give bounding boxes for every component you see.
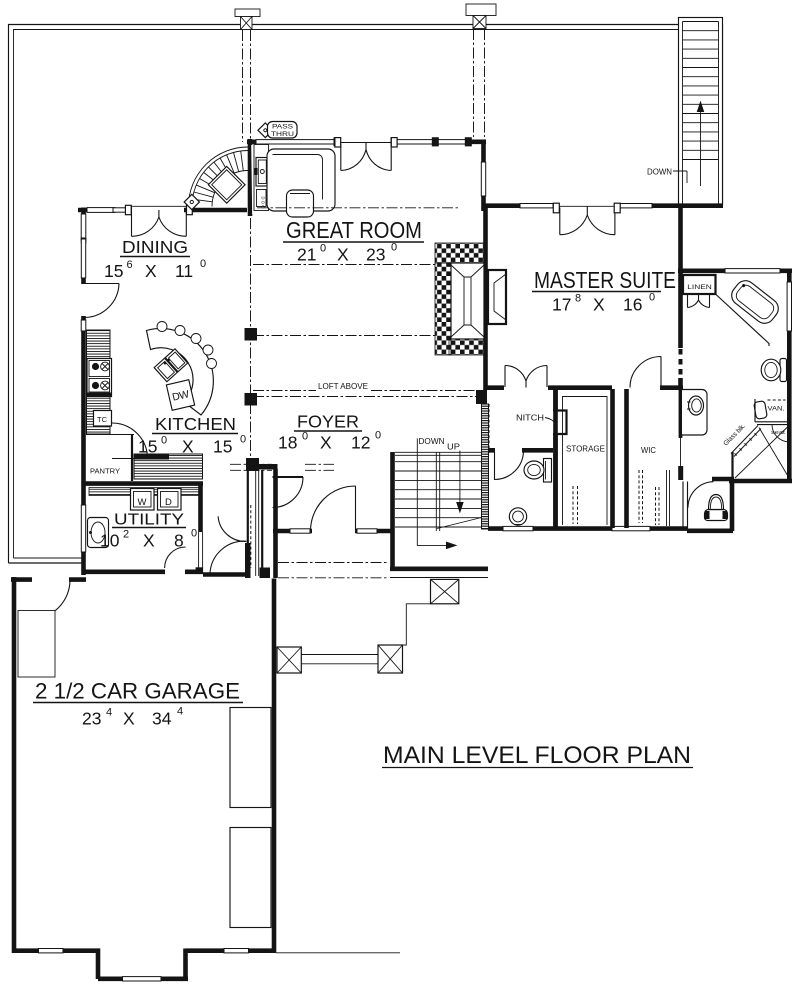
svg-text:4: 4 [177, 706, 183, 718]
svg-text:X: X [182, 437, 194, 457]
svg-text:W: W [138, 497, 147, 508]
svg-text:DOWN: DOWN [647, 168, 672, 177]
svg-text:GREAT ROOM: GREAT ROOM [286, 217, 422, 243]
svg-text:2: 2 [123, 529, 129, 541]
svg-text:STORAGE: STORAGE [566, 445, 605, 454]
svg-text:16: 16 [623, 295, 642, 315]
svg-text:seat: seat [771, 430, 785, 436]
svg-text:2 1/2 CAR GARAGE: 2 1/2 CAR GARAGE [35, 679, 240, 704]
svg-text:VAN.: VAN. [768, 406, 785, 413]
svg-text:X: X [337, 245, 349, 265]
svg-text:0: 0 [191, 528, 197, 540]
svg-text:KITCHEN: KITCHEN [155, 414, 236, 434]
svg-text:LINEN: LINEN [687, 284, 712, 291]
svg-text:17: 17 [552, 295, 571, 315]
svg-text:FOYER: FOYER [297, 412, 359, 432]
svg-text:TC: TC [97, 415, 108, 424]
svg-text:0: 0 [391, 242, 397, 254]
svg-text:23: 23 [366, 245, 385, 265]
svg-text:0: 0 [302, 431, 308, 443]
svg-text:DINING: DINING [122, 237, 188, 257]
svg-text:PANTRY: PANTRY [90, 469, 120, 476]
svg-text:DOWN: DOWN [419, 437, 445, 446]
svg-text:21: 21 [297, 245, 316, 265]
svg-text:0: 0 [649, 292, 655, 304]
svg-text:18: 18 [278, 433, 297, 453]
svg-text:UTILITY: UTILITY [114, 512, 184, 529]
svg-text:10: 10 [100, 531, 120, 551]
svg-text:MASTER SUITE: MASTER SUITE [534, 267, 676, 293]
svg-text:15: 15 [138, 437, 157, 457]
svg-text:8: 8 [575, 293, 581, 305]
svg-text:15: 15 [213, 437, 232, 457]
svg-text:0: 0 [200, 258, 206, 270]
svg-text:8: 8 [174, 531, 184, 551]
svg-text:D: D [165, 497, 172, 508]
svg-text:0: 0 [320, 243, 326, 255]
svg-text:11: 11 [175, 261, 193, 281]
svg-text:DOO: DOO [261, 197, 266, 210]
svg-text:23: 23 [82, 709, 101, 729]
svg-text:X: X [593, 295, 605, 315]
svg-text:PASS: PASS [272, 124, 293, 131]
svg-text:X: X [143, 531, 155, 551]
svg-text:UP: UP [447, 443, 460, 452]
svg-text:6: 6 [127, 259, 133, 271]
svg-text:0: 0 [161, 435, 167, 447]
svg-text:X: X [123, 709, 135, 729]
svg-text:X: X [145, 261, 157, 281]
svg-text:NITCH: NITCH [516, 414, 544, 423]
svg-text:4: 4 [106, 707, 112, 719]
svg-text:THRU: THRU [271, 131, 294, 138]
svg-text:15: 15 [104, 261, 123, 281]
svg-text:WIC: WIC [641, 446, 656, 455]
svg-text:X: X [320, 433, 332, 453]
svg-text:12: 12 [351, 433, 370, 453]
svg-text:34: 34 [152, 709, 172, 729]
svg-text:MAIN LEVEL FLOOR PLAN: MAIN LEVEL FLOOR PLAN [383, 742, 691, 769]
svg-text:0: 0 [240, 434, 246, 446]
svg-text:0: 0 [375, 430, 381, 442]
svg-text:LOFT ABOVE: LOFT ABOVE [318, 382, 368, 391]
